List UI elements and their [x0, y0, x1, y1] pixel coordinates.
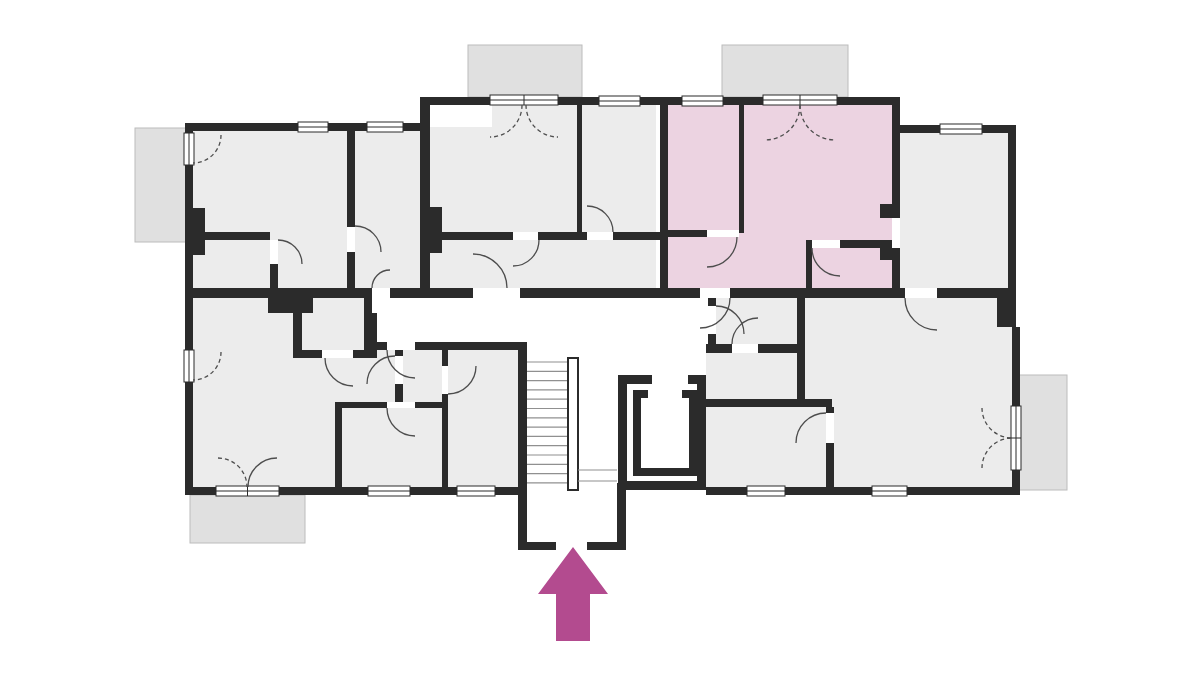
door-threshold	[905, 288, 937, 298]
door-threshold	[442, 366, 448, 394]
wall	[335, 402, 387, 408]
door-threshold	[707, 230, 739, 237]
wall	[430, 232, 513, 240]
wall	[293, 313, 302, 350]
door-threshold	[812, 240, 840, 248]
room-fill	[896, 129, 1008, 296]
wall	[442, 348, 448, 366]
wall	[660, 97, 668, 298]
door-threshold	[387, 402, 415, 408]
wall	[730, 288, 905, 298]
wall	[518, 542, 556, 550]
wall	[797, 298, 805, 400]
wall	[1008, 125, 1016, 303]
wall	[708, 298, 716, 306]
wall	[880, 248, 898, 260]
balcony	[722, 45, 848, 97]
floor-plan-svg	[0, 0, 1200, 675]
wall	[937, 288, 1016, 298]
balcony	[190, 495, 305, 543]
wall	[706, 344, 732, 353]
elevator-shaft-wall	[688, 375, 706, 384]
wall	[415, 342, 527, 350]
wall	[617, 483, 626, 550]
wall	[806, 240, 812, 290]
highlighted-unit-fill[interactable]	[664, 103, 896, 296]
wall	[577, 105, 582, 233]
door-threshold	[892, 218, 900, 248]
wall	[293, 350, 322, 358]
wall	[664, 230, 707, 237]
elevator-shaft-wall	[618, 375, 627, 490]
wall	[185, 208, 205, 255]
elevator-shaft-wall	[633, 468, 697, 476]
entrance-arrow	[538, 547, 608, 641]
wall	[430, 207, 442, 253]
elevator-shaft-wall	[682, 390, 697, 398]
wall	[268, 298, 313, 313]
wall	[347, 131, 355, 227]
room-fill	[426, 103, 656, 296]
door-threshold	[372, 288, 390, 298]
arrow-group	[538, 547, 608, 641]
wall	[997, 293, 1016, 327]
door-threshold	[587, 232, 613, 240]
door-threshold	[732, 344, 758, 353]
door-threshold	[473, 288, 520, 298]
wall	[347, 252, 355, 288]
wall	[442, 394, 448, 488]
wall	[185, 288, 372, 298]
balcony	[468, 45, 582, 97]
door-threshold	[708, 306, 716, 334]
room-fill	[706, 293, 1012, 491]
wall	[613, 232, 660, 240]
wall	[390, 288, 473, 298]
wall	[370, 313, 377, 350]
wall	[395, 384, 403, 402]
wall	[840, 240, 892, 248]
wall	[587, 542, 626, 550]
wall	[518, 348, 527, 550]
wall	[520, 288, 700, 298]
stair-landing	[568, 358, 578, 490]
balcony	[135, 128, 187, 242]
wall	[880, 204, 898, 218]
elevator-shaft-wall	[633, 390, 641, 476]
elevator-shaft-wall	[633, 390, 648, 398]
door-threshold	[270, 240, 278, 264]
wall	[353, 350, 377, 358]
balcony	[1018, 375, 1067, 490]
wall	[205, 232, 270, 240]
wall	[335, 408, 342, 488]
wall	[395, 350, 403, 356]
wall	[826, 407, 834, 413]
wall	[538, 232, 587, 240]
door-threshold	[387, 342, 415, 350]
door-threshold	[347, 227, 355, 252]
door-threshold	[826, 413, 834, 443]
elevator-shaft-wall	[618, 375, 652, 384]
elevator-shaft-wall	[697, 375, 706, 490]
door-threshold	[322, 350, 353, 358]
wall	[826, 443, 834, 488]
wall	[739, 105, 744, 233]
elevator-group	[618, 375, 706, 490]
wall	[270, 264, 278, 288]
corridor-area	[372, 293, 716, 350]
elevator-shaft-wall	[618, 481, 706, 490]
floor-plan-page	[0, 0, 1200, 675]
elevator-shaft-wall	[689, 390, 697, 476]
wall	[185, 123, 193, 495]
wall	[706, 399, 832, 407]
door-threshold	[513, 232, 538, 240]
corridor-area	[430, 105, 492, 127]
door-threshold	[700, 288, 730, 298]
wall	[420, 97, 430, 298]
stairs-group	[527, 358, 617, 490]
